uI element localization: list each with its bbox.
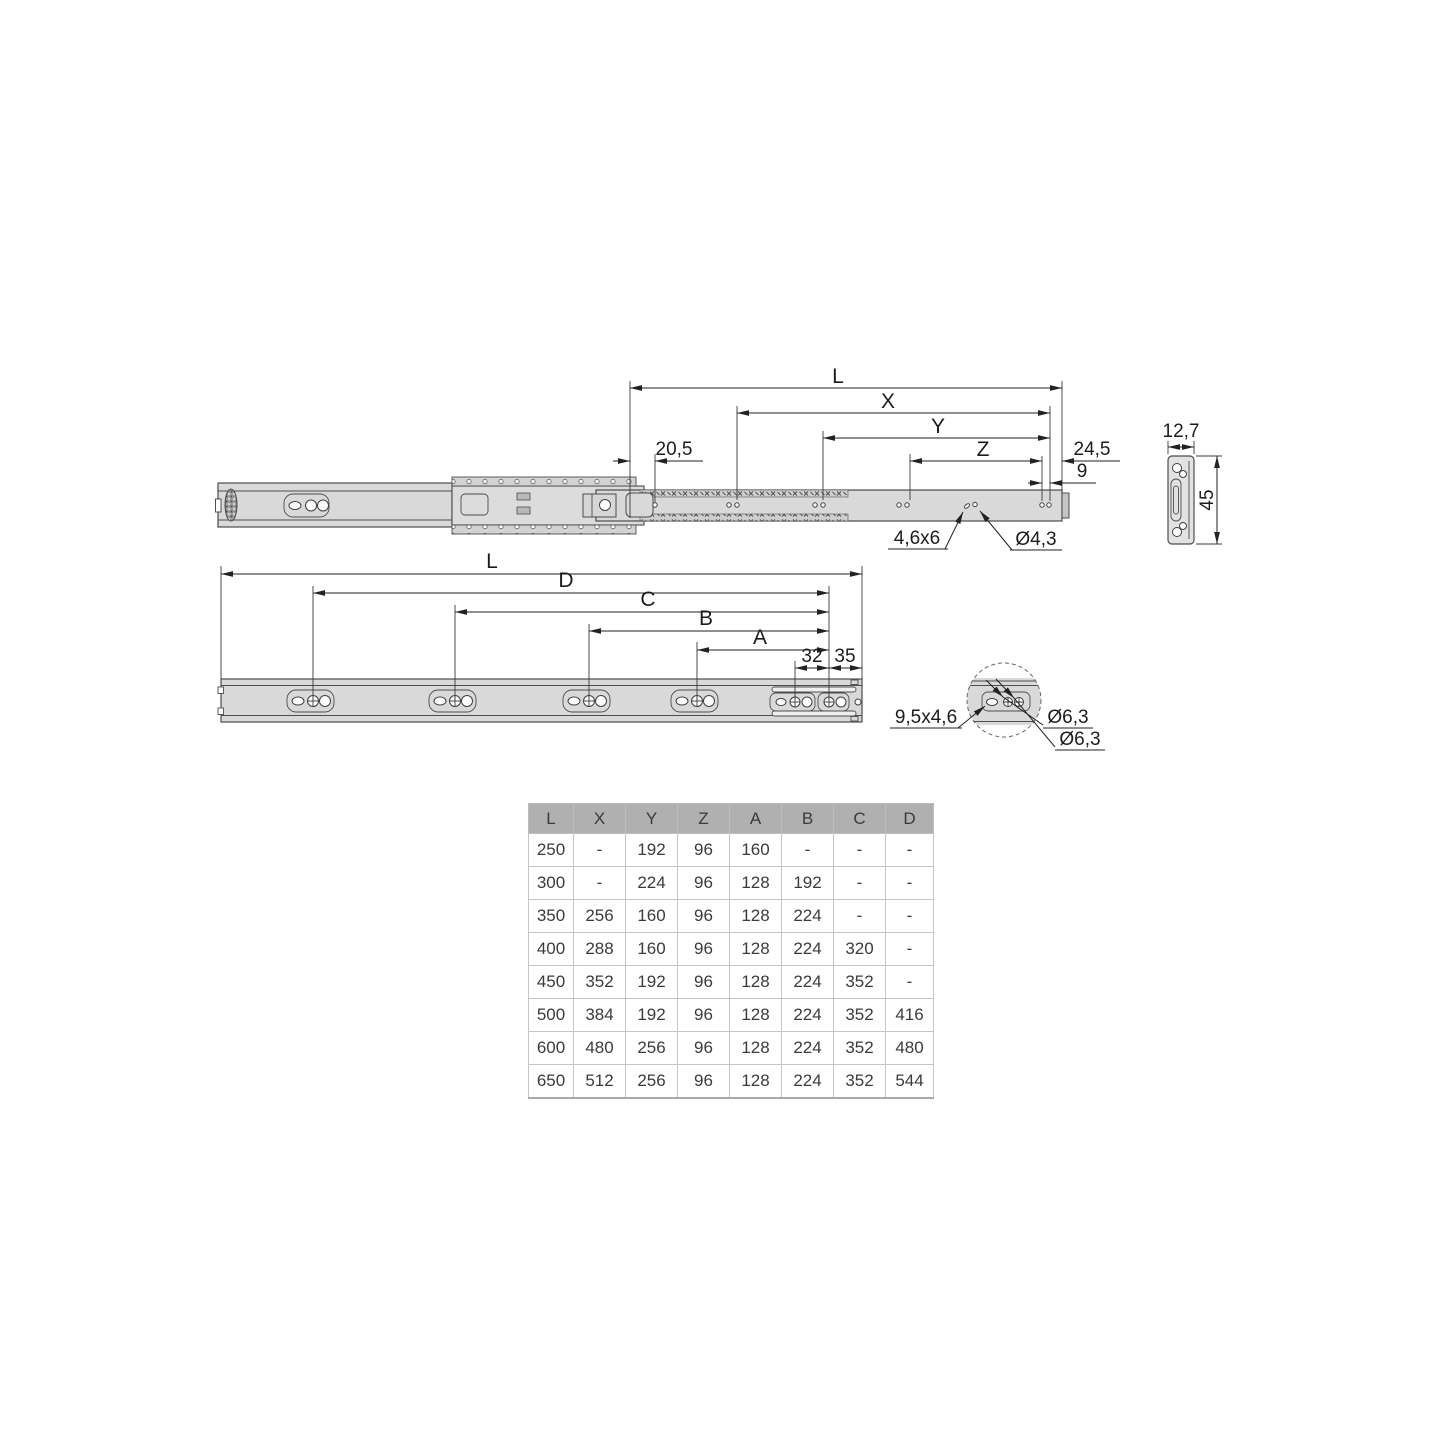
table-cell: 128 [730, 966, 782, 999]
table-cell: 352 [834, 1065, 886, 1099]
drawing-svg: L X Y Z 20,5 24,5 9 4,6x6 Ø4,3 12,7 45 [0, 0, 1440, 1440]
dim-label-hole-dia: Ø4,3 [1015, 529, 1056, 550]
table-cell: 224 [782, 1065, 834, 1099]
dim-label-length-closed: L [486, 550, 498, 573]
table-header-cell: L [529, 804, 574, 834]
table-cell: 96 [678, 1032, 730, 1065]
table-cell: 192 [626, 834, 678, 867]
table-cell: 224 [782, 999, 834, 1032]
dim-label-pitch-32: 32 [801, 646, 822, 667]
dim-label-end-35: 35 [834, 646, 855, 667]
dim-label-rear-offset: 24,5 [1074, 439, 1111, 460]
table-header-cell: A [730, 804, 782, 834]
dim-label-detail-hole-top: Ø6,3 [1047, 707, 1088, 728]
table-cell: 352 [574, 966, 626, 999]
table-cell: - [782, 834, 834, 867]
table-row: 250-19296160--- [529, 834, 934, 867]
table-cell: 160 [730, 834, 782, 867]
dim-label-detail-slot: 9,5x4,6 [895, 707, 957, 728]
table-cell: 128 [730, 1032, 782, 1065]
drawer-slide-technical-drawing: L X Y Z 20,5 24,5 9 4,6x6 Ø4,3 12,7 45 [0, 0, 1440, 1440]
table-cell: 600 [529, 1032, 574, 1065]
table-cell: 160 [626, 900, 678, 933]
dim-label-d: D [558, 569, 573, 592]
table-cell: - [886, 900, 934, 933]
table-cell: 96 [678, 966, 730, 999]
table-row: 50038419296128224352416 [529, 999, 934, 1032]
table-cell: 416 [886, 999, 934, 1032]
table-cell: - [834, 867, 886, 900]
table-row: 300-22496128192-- [529, 867, 934, 900]
table-row: 40028816096128224320- [529, 933, 934, 966]
table-cell: 352 [834, 966, 886, 999]
cross-section-view: 12,7 45 [1163, 421, 1222, 544]
table-cell: 450 [529, 966, 574, 999]
table-cell: 320 [834, 933, 886, 966]
table-cell: 500 [529, 999, 574, 1032]
table-cell: 96 [678, 900, 730, 933]
dim-label-hole-pitch: 9 [1077, 461, 1088, 482]
table-cell: 192 [626, 966, 678, 999]
table-cell: 352 [834, 999, 886, 1032]
dim-label-section-width: 12,7 [1163, 421, 1200, 442]
table-header-row: LXYZABCD [529, 804, 934, 834]
dimension-table: LXYZABCD250-19296160---300-22496128192--… [528, 803, 934, 1099]
table-cell: 96 [678, 1065, 730, 1099]
table-header-cell: B [782, 804, 834, 834]
table-cell: 96 [678, 867, 730, 900]
table-cell: 256 [574, 900, 626, 933]
table-cell: 128 [730, 900, 782, 933]
rubber-stop [225, 489, 237, 521]
closed-slide-view: L D C B A 32 35 [218, 550, 862, 722]
table-row: 60048025696128224352480 [529, 1032, 934, 1065]
table-cell: 128 [730, 999, 782, 1032]
table-cell: 128 [730, 1065, 782, 1099]
table-row: 35025616096128224-- [529, 900, 934, 933]
dim-label-slot-size: 4,6x6 [894, 528, 940, 549]
dim-label-front-offset: 20,5 [656, 439, 693, 460]
table-cell: 250 [529, 834, 574, 867]
table-cell: 544 [886, 1065, 934, 1099]
table-cell: 224 [782, 933, 834, 966]
table-cell: 192 [626, 999, 678, 1032]
table-cell: 650 [529, 1065, 574, 1099]
table-cell: 160 [626, 933, 678, 966]
table-cell: 224 [782, 1032, 834, 1065]
table-cell: 480 [886, 1032, 934, 1065]
table-row: 45035219296128224352- [529, 966, 934, 999]
table-cell: - [834, 900, 886, 933]
extended-slide-view: L X Y Z 20,5 24,5 9 4,6x6 Ø4,3 [216, 365, 1121, 550]
table-cell: 192 [782, 867, 834, 900]
table-cell: 350 [529, 900, 574, 933]
table-cell: 96 [678, 834, 730, 867]
table-cell: 352 [834, 1032, 886, 1065]
table-row: 65051225696128224352544 [529, 1065, 934, 1099]
table-cell: 400 [529, 933, 574, 966]
table-cell: 224 [626, 867, 678, 900]
table-cell: - [574, 834, 626, 867]
dim-label-detail-hole-bottom: Ø6,3 [1059, 729, 1100, 750]
table-cell: 384 [574, 999, 626, 1032]
table-cell: 224 [782, 900, 834, 933]
dim-label-section-height: 45 [1197, 489, 1218, 510]
table-header-cell: D [886, 804, 934, 834]
table-header-cell: Z [678, 804, 730, 834]
dim-label-a: A [753, 626, 767, 649]
table-cell: - [834, 834, 886, 867]
table-cell: 96 [678, 933, 730, 966]
table-cell: 512 [574, 1065, 626, 1099]
table-cell: - [886, 867, 934, 900]
table-cell: 300 [529, 867, 574, 900]
table-header-cell: C [834, 804, 886, 834]
table-cell: - [886, 933, 934, 966]
table-cell: - [886, 966, 934, 999]
table-cell: 256 [626, 1032, 678, 1065]
table-cell: - [574, 867, 626, 900]
table-header-cell: Y [626, 804, 678, 834]
table-cell: - [886, 834, 934, 867]
mounting-hole-detail: 9,5x4,6 Ø6,3 Ø6,3 [890, 663, 1105, 750]
table-cell: 224 [782, 966, 834, 999]
dim-label-c: C [640, 588, 655, 611]
dim-label-length-extended: L [832, 365, 844, 388]
table-cell: 128 [730, 867, 782, 900]
dim-label-b: B [699, 607, 713, 630]
table-cell: 128 [730, 933, 782, 966]
table-cell: 288 [574, 933, 626, 966]
dim-label-y: Y [931, 415, 945, 438]
table-header-cell: X [574, 804, 626, 834]
table-cell: 256 [626, 1065, 678, 1099]
dim-label-x: X [881, 390, 895, 413]
table-cell: 480 [574, 1032, 626, 1065]
table-cell: 96 [678, 999, 730, 1032]
dim-label-z: Z [977, 438, 990, 461]
